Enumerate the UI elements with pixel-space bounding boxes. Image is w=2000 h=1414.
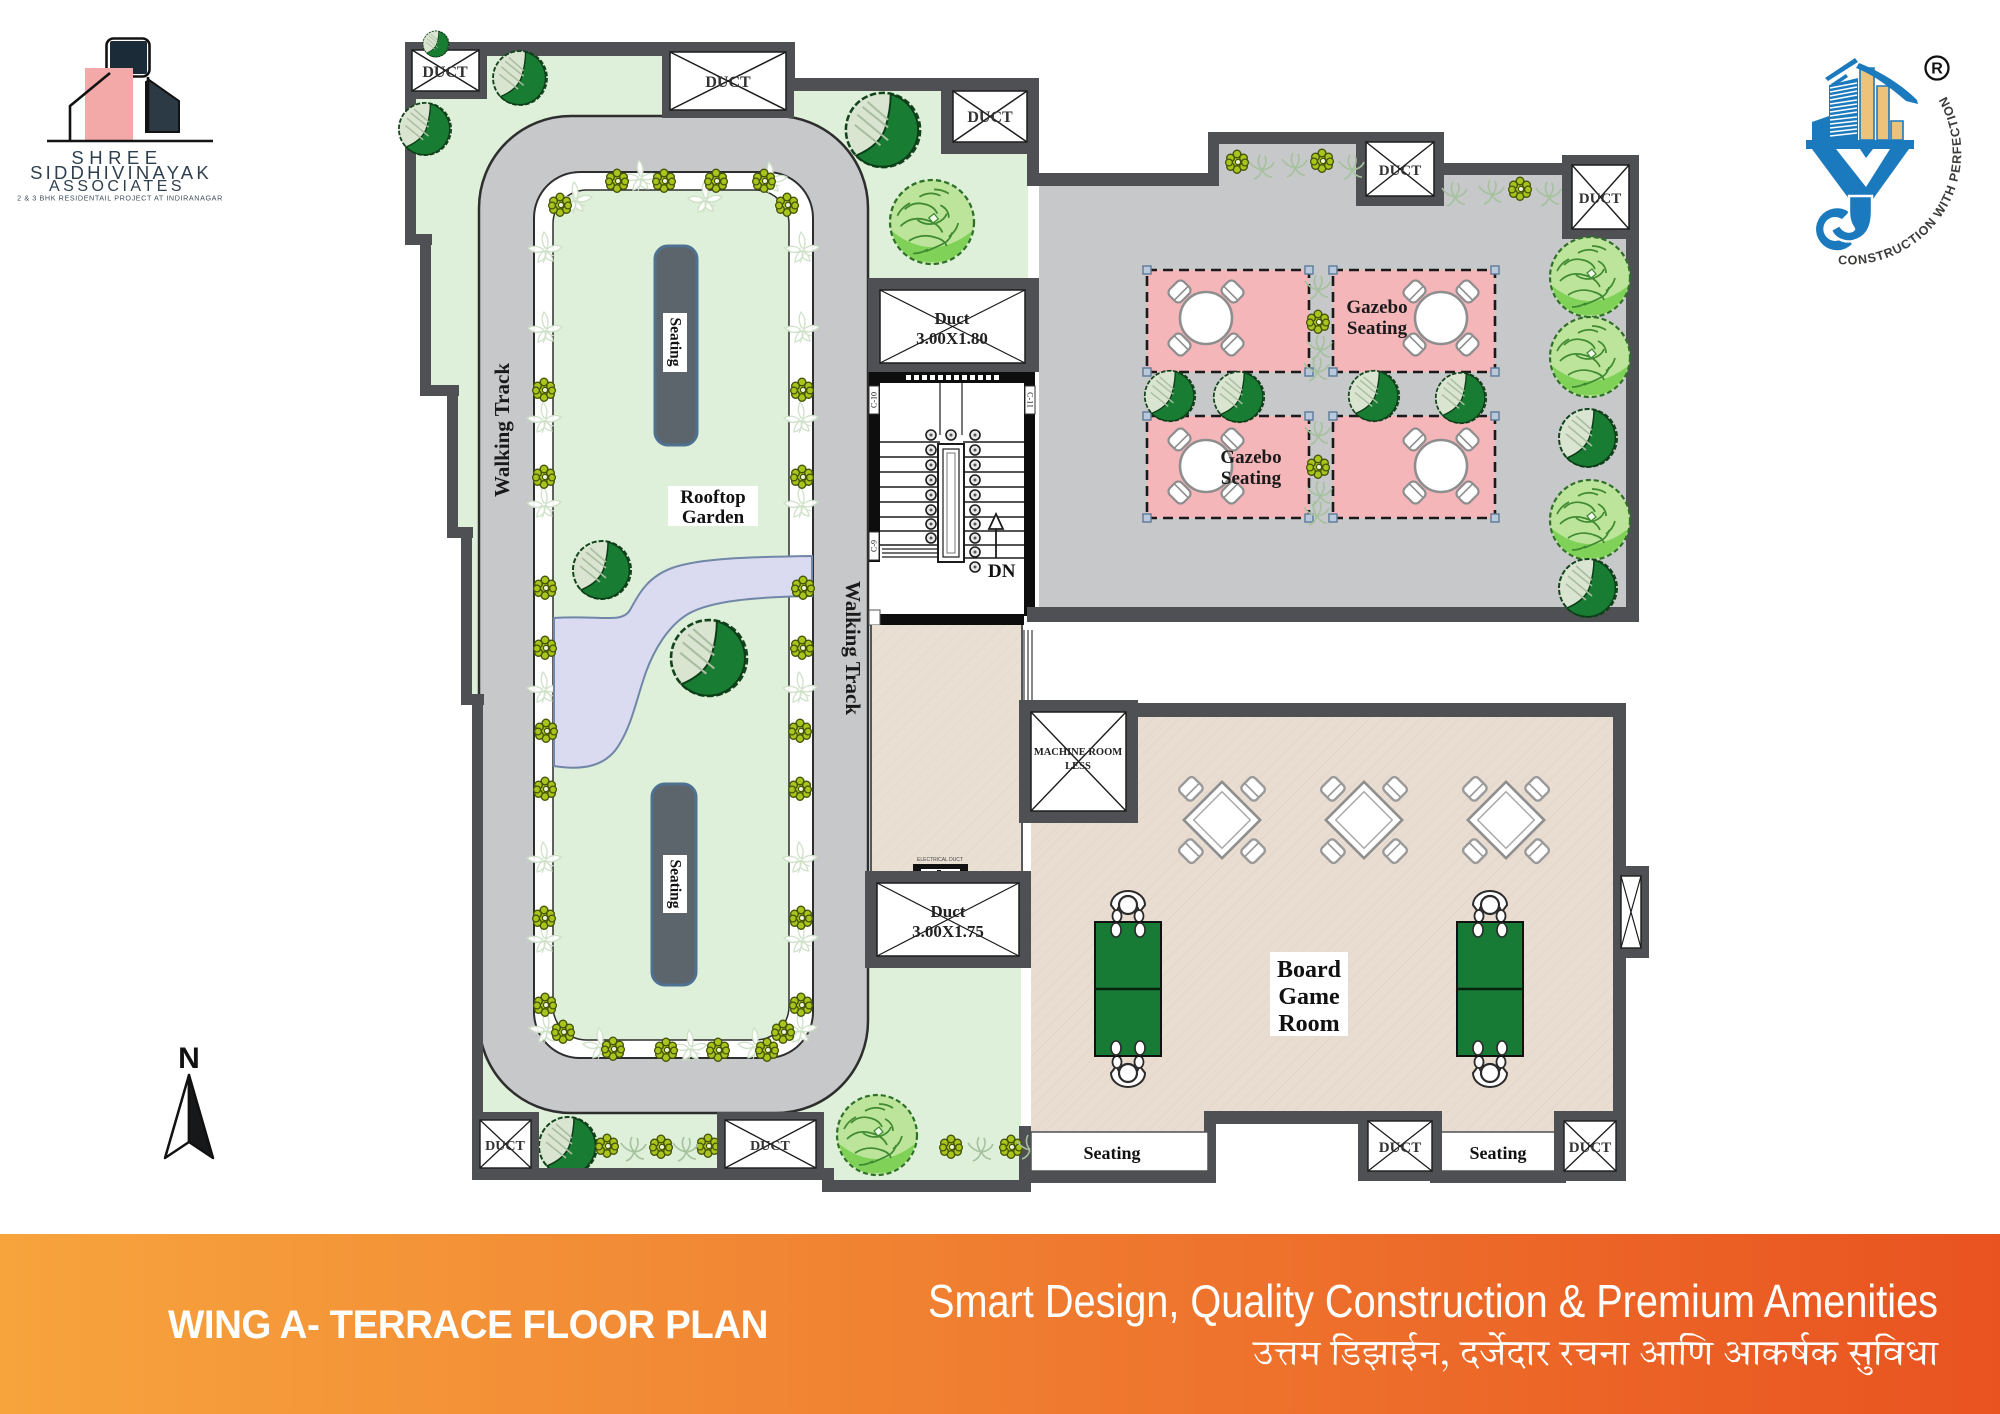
svg-text:Duct: Duct [935, 309, 970, 328]
svg-text:DUCT: DUCT [485, 1139, 525, 1154]
svg-text:ELECTRICAL DUCT: ELECTRICAL DUCT [917, 857, 963, 863]
svg-text:DUCT: DUCT [705, 74, 751, 91]
svg-text:C-11: C-11 [1026, 392, 1035, 408]
svg-text:Game: Game [1278, 984, 1340, 1010]
svg-text:Rooftop: Rooftop [680, 487, 745, 508]
svg-text:Seating: Seating [1347, 318, 1408, 339]
svg-text:Gazebo: Gazebo [1346, 297, 1407, 318]
svg-text:Gazebo: Gazebo [1220, 447, 1281, 468]
svg-text:C-10: C-10 [870, 392, 879, 408]
svg-text:Walking Track: Walking Track [490, 363, 514, 497]
svg-text:MACHINE ROOM: MACHINE ROOM [1034, 747, 1122, 758]
svg-text:3.00X1.80: 3.00X1.80 [916, 329, 988, 348]
svg-text:WING A- TERRACE FLOOR PLAN: WING A- TERRACE FLOOR PLAN [168, 1303, 768, 1347]
svg-text:Seating: Seating [667, 317, 684, 366]
svg-text:DUCT: DUCT [1569, 1140, 1612, 1156]
svg-text:DUCT: DUCT [1579, 191, 1622, 207]
svg-text:DUCT: DUCT [1379, 163, 1422, 179]
svg-text:3.00X1.75: 3.00X1.75 [912, 922, 984, 941]
svg-text:C-9: C-9 [870, 540, 879, 552]
svg-text:N: N [178, 1042, 200, 1075]
svg-text:2 & 3 BHK RESIDENTAIL PROJECT: 2 & 3 BHK RESIDENTAIL PROJECT AT INDIRAN… [17, 194, 223, 203]
svg-text:DN: DN [988, 561, 1016, 582]
svg-text:Seating: Seating [1221, 468, 1282, 489]
svg-text:Smart Design, Quality Construc: Smart Design, Quality Construction & Pre… [928, 1275, 1938, 1327]
svg-text:Room: Room [1278, 1011, 1339, 1037]
svg-text:Garden: Garden [682, 507, 745, 528]
svg-text:Seating: Seating [1083, 1143, 1140, 1163]
svg-text:ASSOCIATES: ASSOCIATES [49, 178, 185, 195]
svg-text:Duct: Duct [931, 902, 966, 921]
svg-text:Board: Board [1277, 957, 1342, 983]
svg-text:DUCT: DUCT [422, 64, 468, 81]
svg-text:LESS: LESS [1065, 761, 1091, 772]
svg-text:DUCT: DUCT [1379, 1140, 1422, 1156]
svg-text:R: R [1931, 61, 1943, 78]
svg-text:Seating: Seating [667, 859, 684, 908]
svg-text:Seating: Seating [1469, 1143, 1526, 1163]
svg-text:DUCT: DUCT [967, 109, 1013, 126]
svg-text:DUCT: DUCT [750, 1139, 790, 1154]
svg-text:Walking Track: Walking Track [841, 581, 865, 715]
